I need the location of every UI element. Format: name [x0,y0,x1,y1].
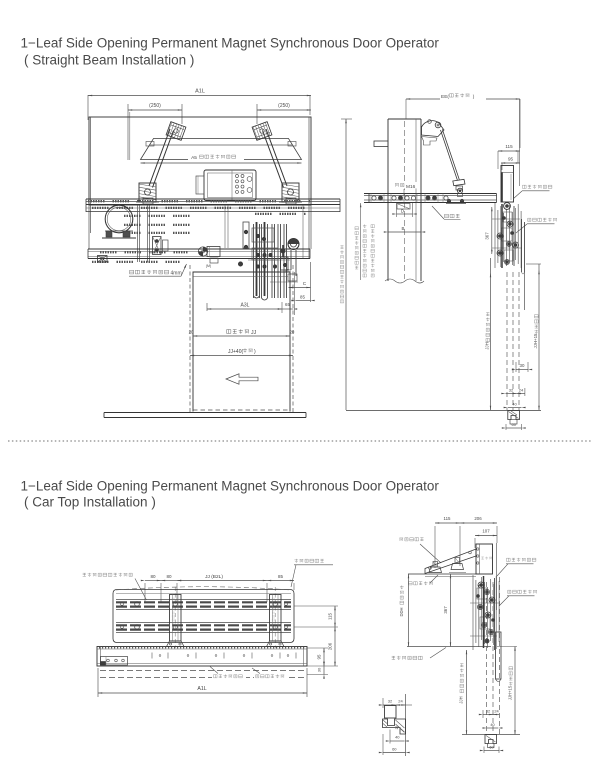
svg-text:367: 367 [485,232,490,240]
svg-text:30: 30 [317,667,322,672]
svg-text:367: 367 [443,606,448,614]
svg-text:25: 25 [395,726,399,730]
svg-text:24: 24 [398,699,403,704]
svg-text:32: 32 [509,387,514,392]
svg-text:JJH+15: JJH+15 [533,333,538,349]
svg-text:80: 80 [166,574,172,579]
svg-text:D: D [401,209,404,214]
svg-text:(M): (M) [206,264,211,268]
svg-text:115: 115 [328,612,333,620]
svg-text:C: C [303,281,307,287]
svg-text:20: 20 [189,330,194,335]
svg-text:DDH: DDH [399,607,404,616]
svg-text:32: 32 [486,708,490,713]
svg-text:JJ: JJ [251,330,257,336]
svg-text:60: 60 [511,422,516,427]
svg-text:40: 40 [512,401,517,406]
svg-text:A5: A5 [191,155,197,161]
svg-text:EE(: EE( [441,94,449,100]
svg-text:206: 206 [474,516,482,521]
svg-text:30: 30 [520,363,525,368]
svg-text:(250): (250) [278,103,290,109]
svg-text:206: 206 [328,642,333,650]
svg-text:A1L: A1L [197,686,206,692]
svg-text:32: 32 [388,699,393,704]
svg-text:80: 80 [150,574,156,579]
svg-text:JJ (B2L): JJ (B2L) [205,574,223,580]
svg-text:( Car Top Installation ): ( Car Top Installation ) [24,495,156,510]
svg-text:JJ+40(: JJ+40( [228,349,243,355]
svg-text:1−Leaf Side Opening Permanent: 1−Leaf Side Opening Permanent Magnet Syn… [21,36,440,51]
svg-text:40: 40 [395,735,400,740]
svg-text:24: 24 [519,387,524,392]
svg-text:A1L: A1L [195,89,205,95]
svg-text:60: 60 [392,746,397,751]
svg-text:( Straight Beam Installation ): ( Straight Beam Installation ) [24,53,194,68]
svg-text:4mm: 4mm [171,271,182,277]
svg-text:M16: M16 [406,184,416,190]
svg-text:JJH: JJH [459,696,464,703]
svg-text:95: 95 [508,157,514,162]
svg-text:95: 95 [317,654,322,659]
svg-text:20: 20 [290,330,295,335]
svg-text:A3L: A3L [241,303,250,309]
svg-text:85: 85 [300,295,305,300]
svg-text:B: B [402,226,405,231]
svg-text:JJH+15: JJH+15 [508,685,513,700]
svg-text:JJH: JJH [485,342,490,350]
svg-text:(250): (250) [149,103,161,109]
svg-text:107: 107 [482,529,490,534]
svg-text:115: 115 [505,144,513,149]
svg-text:115: 115 [444,516,452,521]
svg-text:85: 85 [278,574,284,579]
svg-text:1−Leaf Side Opening Permanent: 1−Leaf Side Opening Permanent Magnet Syn… [21,479,440,494]
